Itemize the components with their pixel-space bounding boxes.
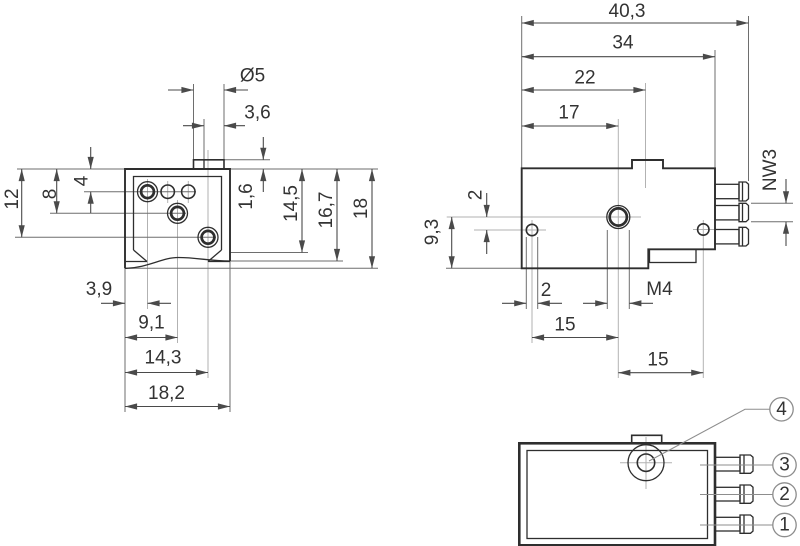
- callout-label-3: 3: [779, 455, 790, 476]
- side-barb-2-stem: [715, 206, 739, 220]
- dim-label-row2-y: 8: [40, 189, 61, 200]
- dim-label-hole2-x: 9,1: [138, 313, 164, 334]
- port-callouts: 4 3 2 1: [649, 398, 796, 537]
- front-chamfer-left: [134, 250, 148, 262]
- dim-label-row3-y: 12: [2, 188, 23, 209]
- dim-label-pitch-left: 15: [554, 315, 575, 336]
- dim-label-stem-diameter: Ø5: [240, 66, 265, 87]
- leader-line-4: [649, 409, 770, 461]
- dim-label-nozzle: NW3: [760, 149, 781, 191]
- dim-label-hole1-x: 3,9: [86, 279, 112, 300]
- dim-label-height: 18: [351, 198, 372, 219]
- side-bottom-block: [650, 249, 697, 262]
- technical-drawing: Ø5 3,6 4 8 12 1,6 14,5 16,7 18 3,9 9,1 1…: [0, 0, 800, 546]
- port-inner-face: [527, 451, 708, 539]
- side-body: [522, 160, 749, 268]
- side-extension-lines: [446, 16, 793, 309]
- side-view: 40,3 34 22 17 NW3 2 9,3 2 M4 15 15: [422, 1, 793, 378]
- dim-label-depth1: 14,5: [281, 185, 302, 222]
- dim-label-tab-x: 22: [574, 68, 595, 89]
- port-barb-1-tip: [740, 515, 753, 533]
- side-barb-3-stem: [715, 184, 739, 198]
- dim-label-pitch-right: 15: [647, 350, 668, 371]
- dim-label-hole3-x: 14,3: [145, 348, 182, 369]
- dim-label-hole-y: 9,3: [422, 219, 443, 245]
- callout-label-2: 2: [779, 484, 790, 505]
- front-center-lines: [148, 150, 209, 378]
- callout-label-1: 1: [779, 515, 790, 536]
- side-barb-1-tip: [739, 227, 749, 246]
- side-barb-2-tip: [739, 203, 749, 221]
- callout-label-4: 4: [776, 399, 787, 420]
- port-view: 4 3 2 1: [519, 398, 796, 546]
- side-barb-1-stem: [715, 230, 739, 244]
- dim-label-depth2: 16,7: [316, 192, 337, 229]
- dim-label-width: 18,2: [148, 383, 185, 404]
- front-dimension-lines: [22, 90, 372, 407]
- dim-label-body-width: 34: [612, 33, 634, 54]
- port-barb-1-stem: [715, 517, 740, 531]
- side-dimension-lines: [452, 23, 786, 373]
- dim-label-stem-height: 1,6: [236, 183, 257, 209]
- dim-label-offset-y: 2: [466, 190, 487, 201]
- dim-label-hole-x: 17: [558, 103, 579, 124]
- drawing-canvas: Ø5 3,6 4 8 12 1,6 14,5 16,7 18 3,9 9,1 1…: [0, 0, 800, 546]
- front-stem: [194, 160, 225, 169]
- port-body: [519, 435, 753, 545]
- front-extension-lines: [15, 84, 378, 412]
- dim-label-thread: M4: [646, 279, 673, 300]
- front-dimension-labels: Ø5 3,6 4 8 12 1,6 14,5 16,7 18 3,9 9,1 1…: [2, 66, 372, 405]
- port-barb-3-stem: [715, 457, 740, 471]
- port-barb-3-tip: [740, 455, 753, 473]
- dim-label-hole-diameter: 2: [541, 280, 552, 301]
- side-barb-3-tip: [739, 182, 749, 201]
- front-view: Ø5 3,6 4 8 12 1,6 14,5 16,7 18 3,9 9,1 1…: [2, 66, 378, 413]
- dim-label-stem-bore: 3,6: [244, 103, 270, 124]
- dim-label-total-width: 40,3: [609, 1, 646, 22]
- dim-label-row1-y: 4: [72, 175, 93, 186]
- port-body-outline: [519, 443, 715, 545]
